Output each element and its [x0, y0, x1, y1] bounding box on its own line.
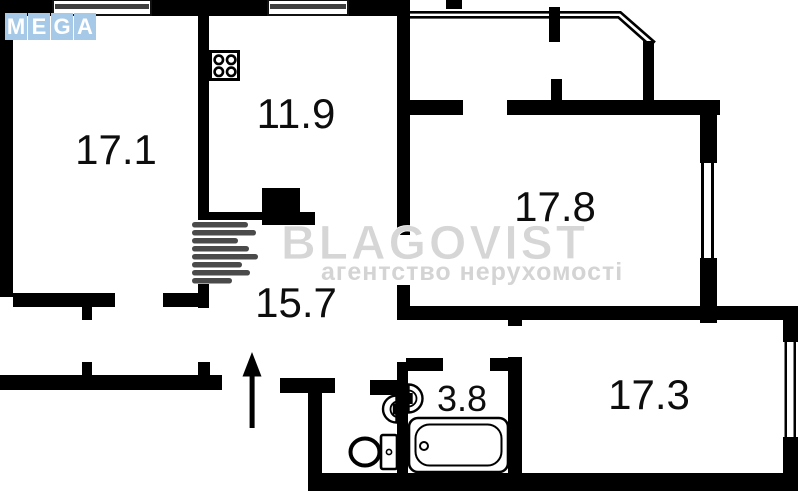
wall-stub: [82, 362, 92, 375]
window: [268, 0, 348, 15]
stove-icon: [211, 52, 239, 80]
wall: [783, 306, 798, 342]
sink-icon: [409, 385, 423, 413]
wall: [508, 357, 522, 473]
floor-plan-svg: BLAGOVIST агентство нерухомості: [0, 0, 800, 491]
entrance-arrow-icon: [243, 352, 262, 428]
wall: [308, 473, 798, 491]
room-area-label: 3.8: [437, 378, 487, 419]
wall: [643, 41, 654, 102]
wall: [700, 100, 717, 163]
wall: [406, 358, 443, 371]
floor-plan: BLAGOVIST агентство нерухомості: [0, 0, 800, 491]
wall-stub: [551, 79, 562, 101]
wall: [397, 0, 410, 235]
window: [783, 342, 798, 437]
room-area-label: 17.1: [75, 126, 157, 173]
window: [700, 163, 717, 258]
wall: [783, 437, 798, 478]
wall-stub: [198, 362, 210, 375]
watermark-logo-icon: [192, 220, 262, 284]
wall: [0, 0, 13, 297]
mega-logo-letter: G: [51, 13, 73, 40]
wall: [397, 362, 408, 473]
wall: [151, 0, 268, 16]
wall-stub: [508, 320, 522, 326]
wall: [490, 358, 508, 371]
watermark-subtitle: агентство нерухомості: [321, 258, 623, 286]
balcony-glazing: [410, 12, 655, 46]
wall-stub: [446, 0, 462, 9]
wall-stub: [82, 307, 92, 320]
wall: [410, 100, 463, 115]
wall: [163, 293, 198, 307]
mega-logo-letter: A: [74, 13, 96, 40]
wall: [397, 306, 783, 320]
room-area-label: 17.3: [608, 371, 690, 418]
mega-logo-letter: M: [5, 13, 27, 40]
mega-logo: M E G A: [5, 13, 96, 40]
wall: [507, 100, 720, 115]
bathtub-icon: [409, 418, 508, 472]
wall: [0, 375, 222, 390]
wall: [370, 380, 397, 395]
sink-icon: [383, 396, 397, 423]
wall: [13, 293, 115, 307]
wall: [308, 393, 322, 473]
room-area-label: 15.7: [255, 279, 337, 326]
toilet-icon: [351, 435, 398, 469]
mega-logo-letter: E: [28, 13, 50, 40]
room-area-label: 11.9: [257, 90, 336, 137]
wall: [280, 378, 335, 393]
room-area-label: 17.8: [514, 183, 596, 230]
